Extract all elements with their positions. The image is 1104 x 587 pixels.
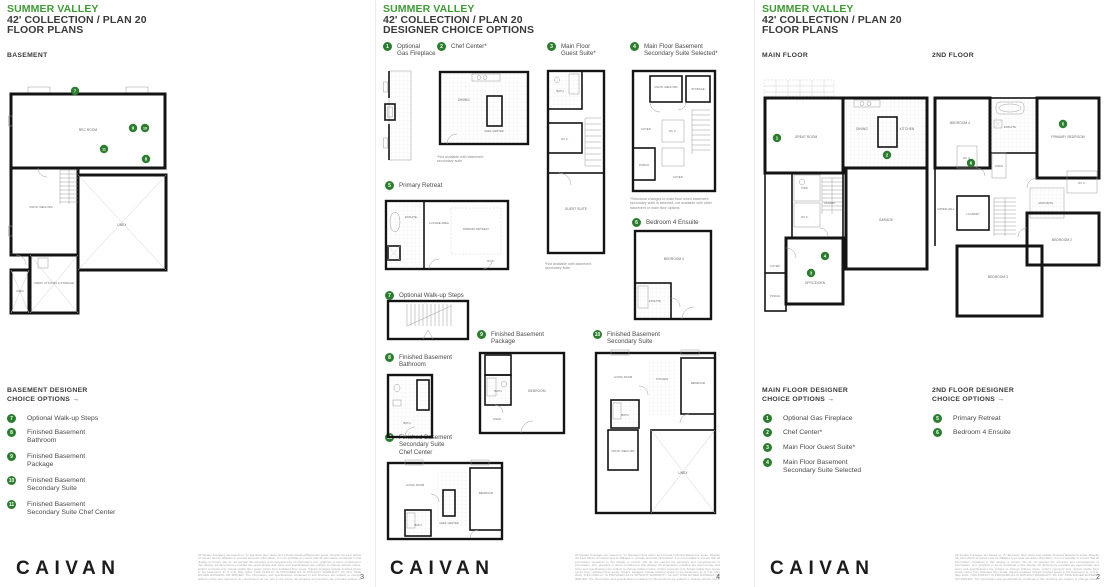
option-marker: 4 (630, 42, 639, 51)
option-header-9: 9 Finished Basement Package (477, 330, 544, 346)
room-label: GARAGE (879, 218, 893, 222)
legend-heading-main: MAIN FLOOR DESIGNER CHOICE OPTIONS → (762, 386, 848, 404)
room-label: LINEN (995, 164, 1003, 168)
room-label: UPPER HALL (937, 207, 955, 211)
page-basement: SUMMER VALLEY 42' COLLECTION / PLAN 20 F… (0, 0, 368, 587)
room-label: ENSUITE (649, 299, 661, 303)
room-label: UNEX (16, 289, 24, 293)
room-label: CHEF CENTER (439, 521, 459, 525)
legend-item: 7 Optional Walk-up Steps (7, 414, 98, 423)
room-label: PRIMARY RETREAT (463, 227, 489, 231)
room-label: CHEF CENTER (484, 129, 504, 133)
room-label: FOYER (641, 127, 650, 131)
room-label: BATH (494, 389, 501, 393)
doc-type: FLOOR PLANS (7, 25, 147, 36)
room-label: FOYER (673, 175, 682, 179)
option-header-5: 5 Primary Retreat (385, 181, 442, 190)
option-label: Main Floor Guest Suite* (783, 443, 855, 452)
legend-item: 11 Finished Basement Secondary Suite Che… (7, 500, 115, 518)
option-marker: 3 (763, 443, 772, 452)
room-label: REC ROOM (79, 128, 98, 132)
floor-label-2nd: 2ND FLOOR (932, 52, 974, 59)
floor-label-basement: BASEMENT (7, 52, 48, 59)
plan-walkup-steps (385, 298, 473, 343)
option-marker: 8 (385, 353, 394, 362)
room-label: BEDROOM (691, 381, 705, 385)
page-floors: SUMMER VALLEY 42' COLLECTION / PLAN 20 F… (760, 0, 1104, 587)
page-divider (754, 0, 755, 587)
option-note: *Not available with basement secondary s… (437, 155, 483, 164)
room-label: UNEX (117, 223, 127, 227)
caivan-logo: CAIVAN (390, 558, 494, 580)
plan-secondary-selected: UNFIN. MECH RM STORAGE FOYER W.I.C. PORC… (630, 68, 722, 194)
room-label: GUEST SUITE (565, 207, 587, 211)
second-floor-plan: BEDROOM 4 ENSUITE LINEN PRIMARY BEDROOM … (932, 78, 1102, 323)
legal-disclaimer: All Square Footages are based on "A" Ele… (955, 554, 1099, 581)
svg-text:10: 10 (143, 126, 147, 130)
option-label: Finished Basement Package (491, 330, 544, 346)
basement-floor-plan-svg: REC ROOM UNFIN. MECH RM UNEX UNFIN. UTIL… (8, 86, 188, 320)
legend-item: 6 Bedroom 4 Ensuite (933, 428, 1011, 437)
legend-heading-2nd: 2ND FLOOR DESIGNER CHOICE OPTIONS → (932, 386, 1014, 404)
room-label: DINING (458, 98, 470, 102)
marker-11: 11 (100, 145, 108, 153)
doc-type: DESIGNER CHOICE OPTIONS (383, 25, 534, 36)
marker-3: 3 (807, 269, 815, 277)
room-label: UNFIN. MECH RM (29, 205, 52, 209)
community-title: SUMMER VALLEY (7, 4, 147, 15)
legend-item: 10 Finished Basement Secondary Suite (7, 476, 85, 494)
room-label: LIVING ROOM (406, 483, 424, 487)
option-label: Chef Center* (783, 428, 822, 437)
option-note: *Structural changes to main floor when b… (630, 197, 712, 210)
option-note: *Not available with basement secondary s… (545, 262, 591, 271)
community-title: SUMMER VALLEY (762, 4, 902, 15)
option-marker: 8 (7, 428, 16, 437)
legend-item: 4 Main Floor Basement Secondary Suite Se… (763, 458, 861, 476)
room-label: PWD. (801, 186, 808, 190)
page-divider (375, 0, 376, 587)
option-marker: 7 (7, 414, 16, 423)
page-number: 4 (716, 574, 720, 581)
plan-secondary-chef: LIVING ROOM CHEF CENTER BEDROOM BATH (385, 460, 507, 544)
room-label: KITCHEN (656, 377, 668, 381)
option-marker: 10 (7, 476, 16, 485)
plan-chef-center: DINING CHEF CENTER (437, 66, 532, 150)
room-label: W.I.C. (487, 259, 495, 263)
room-label: FOYER (770, 264, 779, 268)
room-label: PORCH (770, 294, 780, 298)
room-label: MAIN BATH (1039, 201, 1054, 205)
legend-heading-basement: BASEMENT DESIGNER CHOICE OPTIONS → (7, 386, 88, 404)
room-label: BEDROOM 2 (1052, 238, 1072, 242)
svg-text:11: 11 (102, 147, 106, 151)
room-label: PRIMARY BEDROOM (1051, 135, 1085, 139)
marker-10: 10 (141, 124, 149, 132)
room-label: BEDROOM 4 (950, 121, 970, 125)
community-title: SUMMER VALLEY (383, 4, 534, 15)
floor-label-main: MAIN FLOOR (762, 52, 808, 59)
option-label: Finished Basement Secondary Suite Chef C… (27, 500, 115, 518)
room-label: W.I.C. (1078, 181, 1086, 185)
room-label: ENSUITE (405, 215, 417, 219)
caivan-logo: CAIVAN (770, 558, 874, 580)
room-label: UNFIN. MECH RM (654, 85, 677, 89)
page-number: 2 (1096, 574, 1100, 581)
option-header-2: 2 Chef Center* (437, 42, 487, 51)
room-label: DINING (856, 127, 868, 131)
option-label: Primary Retreat (399, 181, 442, 189)
room-label: LOUNGE AREA (429, 221, 449, 225)
marker-6: 6 (967, 159, 975, 167)
room-label: GREAT ROOM (795, 135, 818, 139)
option-label: Bedroom 4 Ensuite (646, 218, 699, 226)
option-marker: 1 (763, 414, 772, 423)
option-marker: 4 (763, 458, 772, 467)
marker-9: 9 (129, 124, 137, 132)
room-label: UNEX (678, 471, 688, 475)
marker-2: 2 (883, 151, 891, 159)
plan-guest-suite: BATH W.I.C. GUEST SUITE (545, 68, 607, 258)
page-number: 3 (360, 574, 364, 581)
marker-1: 1 (773, 134, 781, 142)
marker-4: 4 (821, 252, 829, 260)
room-label: BEDROOM (528, 389, 545, 393)
room-label: OFFICE/DEN (805, 281, 826, 285)
legal-disclaimer: All Square Footages are based on "A" Ele… (575, 554, 720, 581)
page-options: SUMMER VALLEY 42' COLLECTION / PLAN 20 D… (380, 0, 724, 587)
option-marker: 9 (7, 452, 16, 461)
legend-item: 2 Chef Center* (763, 428, 822, 437)
option-label: Finished Basement Bathroom (399, 353, 452, 369)
room-label: W.I.C. (669, 129, 677, 133)
room-label: BATH (621, 413, 628, 417)
option-marker: 11 (7, 500, 16, 509)
option-label: Optional Walk-up Steps (27, 414, 98, 423)
option-label: Main Floor Guest Suite* (561, 42, 596, 58)
room-label: UNFIN. UTILITIES & STORAGE (34, 281, 74, 285)
option-label: Primary Retreat (953, 414, 1001, 423)
room-label: W.I.C. (561, 137, 569, 141)
basement-floor-plan: REC ROOM UNFIN. MECH RM UNEX UNFIN. UTIL… (8, 86, 188, 320)
option-label: Optional Gas Fireplace (783, 414, 853, 423)
marker-7: 7 (71, 87, 79, 95)
doc-type: FLOOR PLANS (762, 25, 902, 36)
option-marker: 5 (933, 414, 942, 423)
room-label: BEDROOM 3 (988, 275, 1008, 279)
page-header: SUMMER VALLEY 42' COLLECTION / PLAN 20 F… (7, 4, 147, 36)
option-header-4: 4 Main Floor Basement Secondary Suite Se… (630, 42, 718, 58)
page-header: SUMMER VALLEY 42' COLLECTION / PLAN 20 F… (762, 4, 902, 36)
legend-item: 5 Primary Retreat (933, 414, 1001, 423)
legend-item: 8 Finished Basement Bathroom (7, 428, 85, 446)
room-label: W.I.C. (801, 215, 809, 219)
room-label: ENSUITE (1004, 125, 1016, 129)
option-label: Finished Basement Secondary Suite (607, 330, 660, 346)
room-label: LINEN (493, 417, 501, 421)
option-marker: 9 (477, 330, 486, 339)
room-label: BEDROOM (479, 491, 493, 495)
room-label: BATH (556, 89, 563, 93)
option-marker: 5 (385, 181, 394, 190)
option-marker: 6 (933, 428, 942, 437)
option-marker: 6 (632, 218, 641, 227)
option-header-6: 6 Bedroom 4 Ensuite (632, 218, 699, 227)
room-label: STORAGE (691, 87, 705, 91)
plan-gas-fireplace (383, 68, 415, 163)
option-label: Main Floor Basement Secondary Suite Sele… (644, 42, 718, 58)
option-label: Main Floor Basement Secondary Suite Sele… (783, 458, 861, 476)
room-label: LAUNDRY (966, 212, 979, 216)
option-marker: 10 (593, 330, 602, 339)
plan-secondary-suite: LIVING ROOM KITCHEN BEDROOM BATH UNFIN. … (593, 350, 718, 518)
legend-item: 3 Main Floor Guest Suite* (763, 443, 855, 452)
option-label: Bedroom 4 Ensuite (953, 428, 1011, 437)
option-header-3: 3 Main Floor Guest Suite* (547, 42, 596, 58)
option-label: Finished Basement Secondary Suite (27, 476, 85, 494)
option-header-10: 10 Finished Basement Secondary Suite (593, 330, 660, 346)
room-label: LIVING ROOM (614, 375, 632, 379)
legend-item: 1 Optional Gas Fireplace (763, 414, 853, 423)
main-floor-plan: GREAT ROOM DINING KITCHEN PWD. MUDRM. W.… (762, 78, 930, 325)
room-label: BEDROOM 4 (664, 257, 684, 261)
option-marker: 3 (547, 42, 556, 51)
room-label: KITCHEN (900, 127, 915, 131)
legend-item: 9 Finished Basement Package (7, 452, 85, 470)
option-marker: 2 (437, 42, 446, 51)
legal-disclaimer: All Square Footages are based on "A" Ele… (198, 554, 361, 581)
marker-8: 8 (142, 155, 150, 163)
plan-primary-retreat: ENSUITE LOUNGE AREA PRIMARY RETREAT W.I.… (383, 198, 511, 274)
caivan-logo: CAIVAN (16, 558, 120, 580)
plan-basement-package: BATH BEDROOM LINEN (477, 350, 569, 438)
option-label: Chef Center* (451, 42, 487, 50)
plan-basement-bathroom: BATH (385, 372, 437, 442)
marker-5: 5 (1059, 120, 1067, 128)
option-label: Finished Basement Package (27, 452, 85, 470)
option-header-1: 1 Optional Gas Fireplace (383, 42, 436, 58)
room-label: BATH (403, 421, 410, 425)
option-label: Optional Gas Fireplace (397, 42, 436, 58)
page-header: SUMMER VALLEY 42' COLLECTION / PLAN 20 D… (383, 4, 534, 36)
room-label: UNFIN. MECH RM (611, 449, 634, 453)
room-label: MUDRM. (824, 201, 835, 205)
plan-bedroom4-ensuite: BEDROOM 4 ENSUITE (632, 228, 714, 323)
room-label: PORCH (639, 163, 649, 167)
option-header-8: 8 Finished Basement Bathroom (385, 353, 452, 369)
option-label: Finished Basement Bathroom (27, 428, 85, 446)
option-marker: 2 (763, 428, 772, 437)
room-label: BATH (414, 523, 421, 527)
option-marker: 1 (383, 42, 392, 51)
